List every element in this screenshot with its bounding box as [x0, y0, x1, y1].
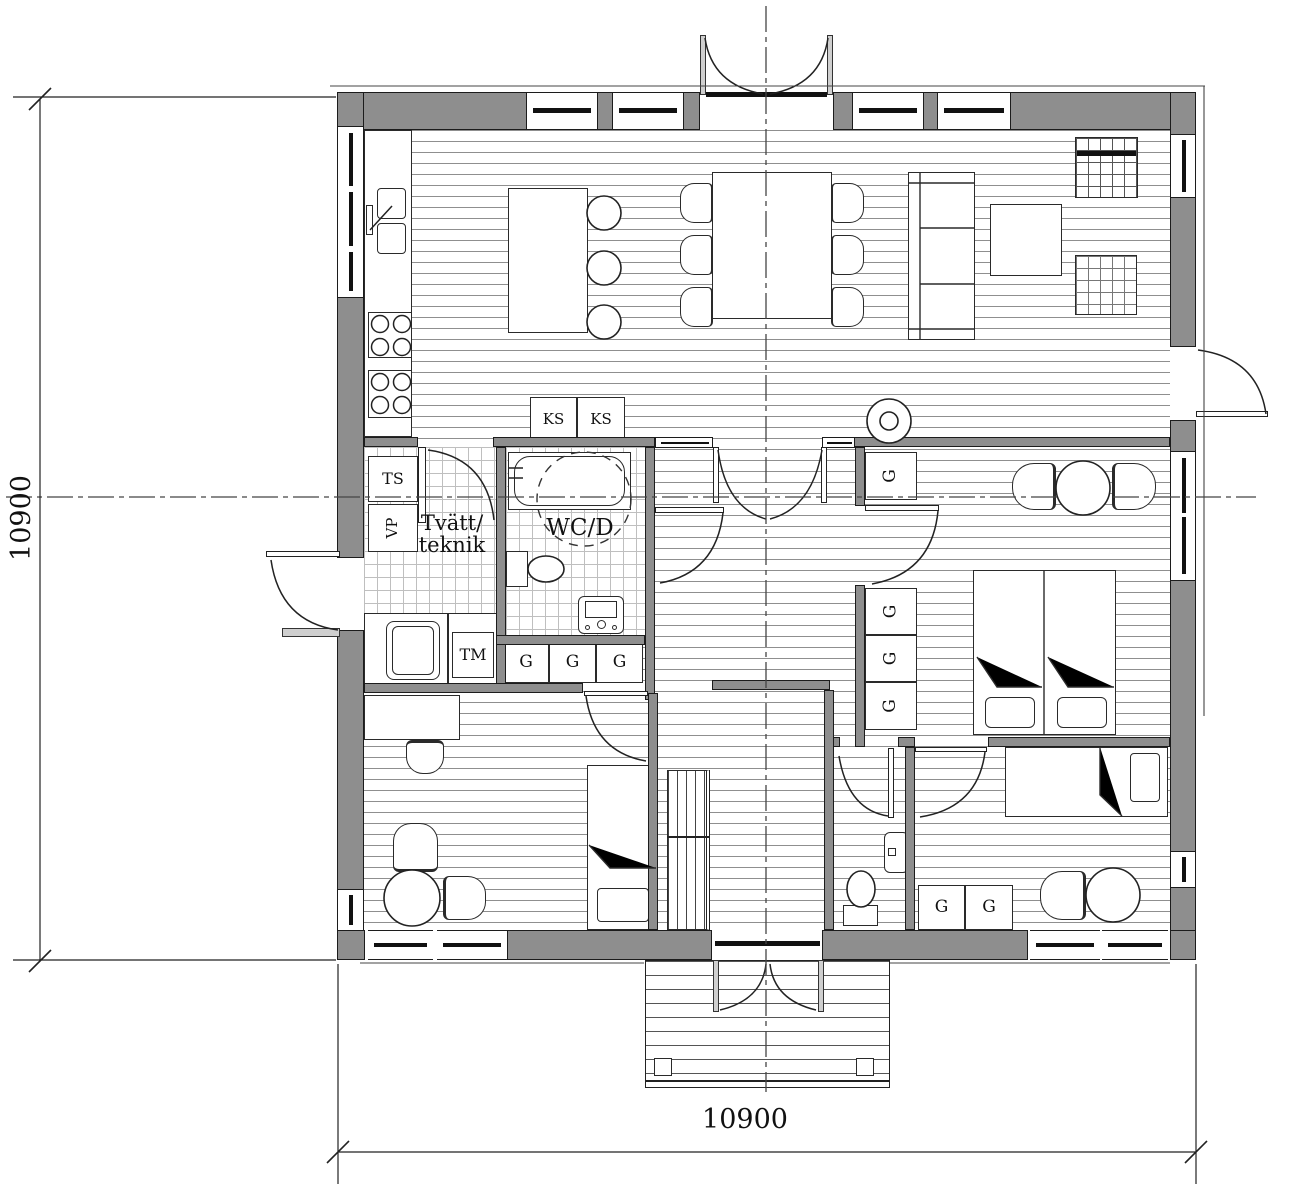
laundry-exterior-door-swing	[271, 560, 338, 630]
wall-top-pier-4	[923, 92, 938, 130]
drying-cabinet-ts-label: TS	[368, 456, 418, 502]
kitchen-sink-basin-2	[377, 223, 406, 254]
wall-right-1	[1170, 92, 1196, 135]
wall-living-bedroom1	[853, 437, 1170, 447]
dining-chair-1	[680, 183, 713, 223]
dim-tick	[29, 950, 51, 972]
corridor-closet	[667, 770, 710, 930]
window-top-1	[527, 92, 597, 130]
bedroom4-chair-east	[443, 876, 486, 920]
toilet-tank-wcd	[506, 551, 528, 587]
entrance-south-jamb-left	[713, 960, 719, 1012]
wall-bottom-3	[822, 930, 1028, 960]
kitchen-island	[508, 188, 588, 333]
entrance-north-jamb-right	[827, 35, 833, 95]
bedroom4-pillow	[597, 888, 649, 922]
entrance-north-sill	[706, 92, 827, 97]
wall-right-4	[1170, 580, 1196, 852]
toilet-tank-wc2	[843, 905, 878, 926]
vanity-dot-right	[612, 625, 617, 630]
wardrobe-g-label: G	[918, 885, 965, 930]
corridor-closet-divider	[667, 836, 710, 838]
living-exterior-door-swing	[1198, 350, 1266, 414]
bedroom1-pillow-right	[1057, 697, 1107, 728]
wardrobe-g-label: G	[868, 586, 915, 638]
hall-door-leaf-right	[821, 447, 827, 503]
fridge-ks-1-label: KS	[530, 397, 577, 442]
dim-tick	[327, 1141, 349, 1163]
wall-corridor-left	[648, 693, 658, 930]
window-right-2	[1170, 452, 1196, 580]
dim-tick	[29, 88, 51, 110]
hall-door-leaf-left	[713, 447, 719, 503]
bedroom1-chair-right	[1112, 463, 1156, 510]
wall-top-pier-3	[833, 92, 853, 130]
entrance-north-swing-left	[705, 38, 763, 94]
living-exterior-door-leaf	[1196, 411, 1268, 417]
dimension-height-text: 10900	[4, 438, 40, 598]
coffee-table	[990, 204, 1062, 276]
dining-chair-6	[831, 287, 864, 327]
wardrobe-g-label: G	[549, 642, 596, 683]
wall-left-1	[337, 92, 364, 127]
dining-chair-4	[831, 183, 864, 223]
entrance-deck	[645, 960, 890, 1088]
kitchen-hob-2	[368, 370, 412, 418]
wardrobe-g-label: G	[965, 885, 1013, 930]
dimension-width-text: 10900	[660, 1100, 830, 1140]
kitchen-hob-1	[368, 312, 412, 358]
fridge-ks-2-label: KS	[577, 397, 625, 442]
washing-machine-tm-label: TM	[452, 632, 494, 678]
vanity-dot-left	[585, 625, 590, 630]
bedroom3-door-leaf	[915, 747, 987, 752]
window-right-1	[1170, 135, 1196, 197]
desk	[364, 695, 460, 740]
wall-bedroom1-bottom-c	[988, 737, 1170, 747]
wall-bottom-4	[1170, 930, 1196, 960]
wall-right-3	[1170, 420, 1196, 452]
wall-top-pier-2	[683, 92, 700, 130]
wc2-door-leaf	[888, 748, 894, 818]
tv-bench-bar	[1077, 151, 1136, 156]
bedroom1-door-leaf	[865, 505, 939, 511]
bathtub-inner	[514, 456, 625, 506]
bedroom4-chair-north	[393, 823, 438, 872]
entrance-north-swing-right	[770, 38, 828, 94]
wardrobe-g-label: G	[503, 642, 549, 683]
wall-bottom-1	[337, 930, 365, 960]
laundry-room-label: Tvätt/teknik	[404, 503, 500, 565]
window-right-3	[1170, 852, 1196, 887]
vanity-faucet	[597, 620, 606, 629]
wall-right-2	[1170, 197, 1196, 347]
laundry-exterior-step	[282, 628, 340, 637]
tv-bench	[1075, 137, 1138, 198]
wc-room-label: WC/D	[538, 512, 622, 544]
bedroom1-pillow-left	[985, 697, 1035, 728]
laundry-sink-inner	[392, 626, 434, 675]
wall-kitchen-laundry-a	[364, 437, 418, 447]
floor-plan: KS KS TS VP Tvätt/teknik TM WC/D G G G G	[0, 0, 1291, 1190]
entrance-north-jamb-left	[700, 35, 706, 95]
wc2-basin-tap	[888, 848, 896, 856]
wardrobe-g-label: G	[867, 680, 915, 732]
wall-left-3	[337, 630, 364, 890]
wall-wc-hall	[645, 447, 655, 700]
dining-table	[712, 172, 832, 319]
wardrobe-g-label: G	[596, 642, 643, 683]
window-bottom-1	[368, 930, 433, 960]
dining-chair-5	[831, 235, 864, 275]
dining-chair-2	[680, 235, 713, 275]
desk-chair	[406, 740, 444, 774]
wall-top-2	[1010, 92, 1196, 130]
window-bottom-2	[437, 930, 507, 960]
deck-edge-line	[645, 1080, 890, 1082]
wardrobe-g-label: G	[867, 450, 915, 502]
wall-hall-bedroom1-a	[855, 447, 865, 506]
entrance-south-sill	[715, 941, 820, 946]
kitchen-sink-basin-1	[377, 188, 406, 219]
laundry-exterior-door-leaf	[266, 551, 340, 557]
window-left-2	[337, 890, 364, 930]
wcd-door-leaf	[655, 507, 724, 513]
bedroom1-chair-left	[1012, 463, 1056, 510]
vanity-sink-inner	[585, 601, 617, 618]
living-rug	[1075, 255, 1137, 315]
entrance-south-jamb-right	[818, 960, 824, 1012]
window-top-2	[613, 92, 683, 130]
window-bottom-4	[1102, 930, 1168, 960]
hall-sidelight-left	[655, 437, 713, 448]
deck-post-right	[856, 1058, 874, 1076]
wall-corridor-right	[824, 690, 834, 930]
window-bottom-3	[1030, 930, 1100, 960]
wall-bedroom1-bottom-b	[898, 737, 915, 747]
dim-tick	[1185, 1141, 1207, 1163]
dining-chair-3	[680, 287, 713, 327]
wall-hall-bottom	[712, 680, 830, 690]
sofa	[908, 172, 975, 340]
wall-top-pier-1	[597, 92, 613, 130]
bedroom3-chair	[1040, 871, 1086, 920]
wall-wc2-bedroom3	[905, 747, 915, 930]
wall-bottom-2	[507, 930, 712, 960]
wall-hall-bedroom1-b	[855, 585, 865, 747]
bedroom3-pillow	[1130, 753, 1160, 802]
deck-post-left	[654, 1058, 672, 1076]
wall-laundry-bedroom4	[364, 683, 583, 693]
window-left-1	[337, 127, 364, 297]
wardrobe-g-label: G	[868, 633, 915, 685]
bedroom4-door-leaf	[584, 691, 648, 696]
kitchen-faucet	[366, 205, 373, 235]
window-top-4	[938, 92, 1010, 130]
wall-left-2	[337, 297, 364, 558]
window-top-3	[853, 92, 923, 130]
wall-top-1	[337, 92, 527, 130]
